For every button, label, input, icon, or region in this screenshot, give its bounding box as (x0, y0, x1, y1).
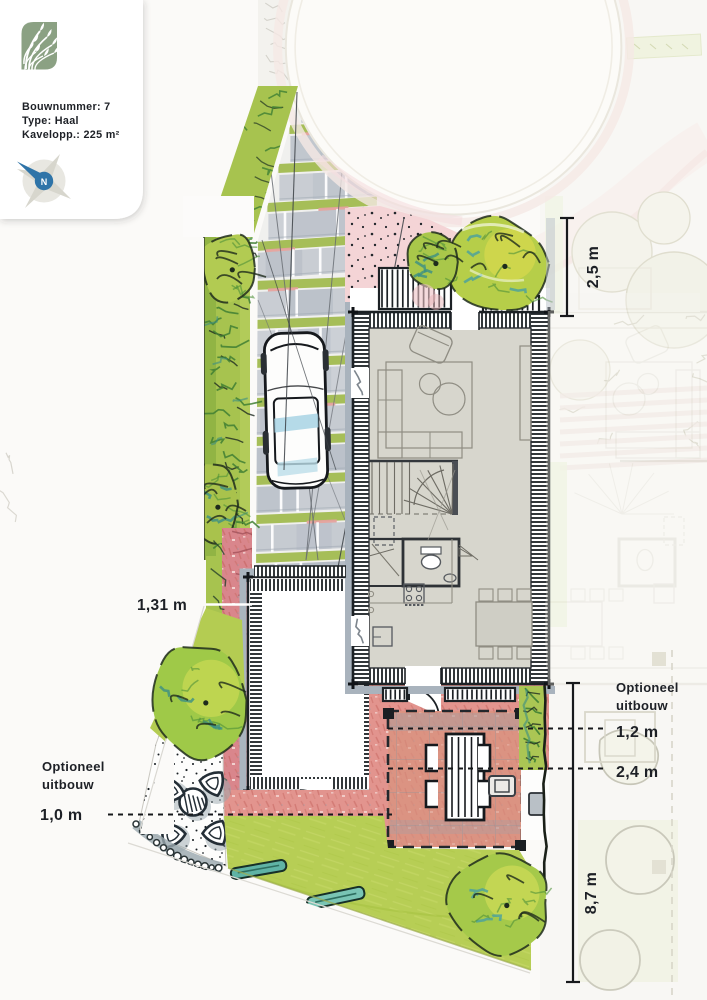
svg-text:Optioneel: Optioneel (42, 759, 105, 774)
svg-text:Bouwnummer: 7: Bouwnummer: 7 (22, 101, 110, 113)
svg-text:Kavelopp.: 225 m²: Kavelopp.: 225 m² (22, 129, 120, 141)
svg-text:2,4 m: 2,4 m (616, 764, 658, 781)
svg-text:uitbouw: uitbouw (616, 698, 669, 713)
svg-text:1,31 m: 1,31 m (137, 597, 187, 614)
svg-text:1,0 m: 1,0 m (40, 807, 82, 824)
svg-text:1,2 m: 1,2 m (616, 724, 658, 741)
svg-text:uitbouw: uitbouw (42, 777, 95, 792)
svg-text:2,5 m: 2,5 m (585, 246, 602, 288)
svg-text:N: N (41, 177, 48, 187)
svg-text:8,7 m: 8,7 m (583, 872, 600, 914)
svg-text:Optioneel: Optioneel (616, 680, 679, 695)
svg-text:Type: Haal: Type: Haal (22, 115, 79, 127)
